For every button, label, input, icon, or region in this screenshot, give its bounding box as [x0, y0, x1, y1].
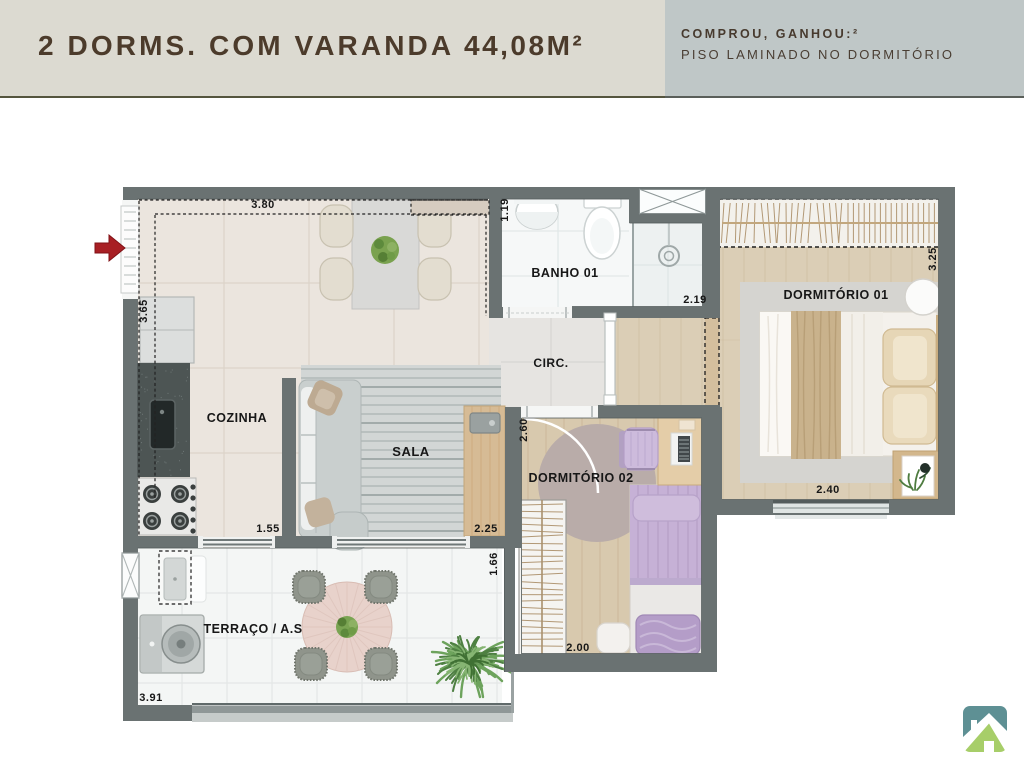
svg-text:3.91: 3.91	[139, 692, 162, 704]
svg-text:3.80: 3.80	[251, 199, 274, 211]
svg-text:1.66: 1.66	[488, 552, 500, 575]
svg-text:TERRAÇO / A.S: TERRAÇO / A.S	[203, 622, 302, 636]
svg-text:3.65: 3.65	[138, 299, 150, 322]
svg-text:2.25: 2.25	[474, 523, 497, 535]
svg-text:2.40: 2.40	[816, 484, 839, 496]
svg-text:2.60: 2.60	[518, 418, 530, 441]
svg-text:DORMITÓRIO 01: DORMITÓRIO 01	[783, 287, 888, 302]
svg-text:COZINHA: COZINHA	[207, 411, 267, 425]
svg-text:1.55: 1.55	[256, 523, 279, 535]
svg-text:2.19: 2.19	[683, 294, 706, 306]
svg-text:CIRC.: CIRC.	[533, 356, 568, 370]
svg-text:2.00: 2.00	[566, 642, 589, 654]
svg-text:DORMITÓRIO 02: DORMITÓRIO 02	[528, 470, 633, 485]
svg-text:SALA: SALA	[392, 444, 430, 459]
svg-text:3.25: 3.25	[927, 247, 939, 270]
svg-text:BANHO 01: BANHO 01	[531, 266, 598, 280]
svg-text:1.19: 1.19	[499, 198, 511, 221]
